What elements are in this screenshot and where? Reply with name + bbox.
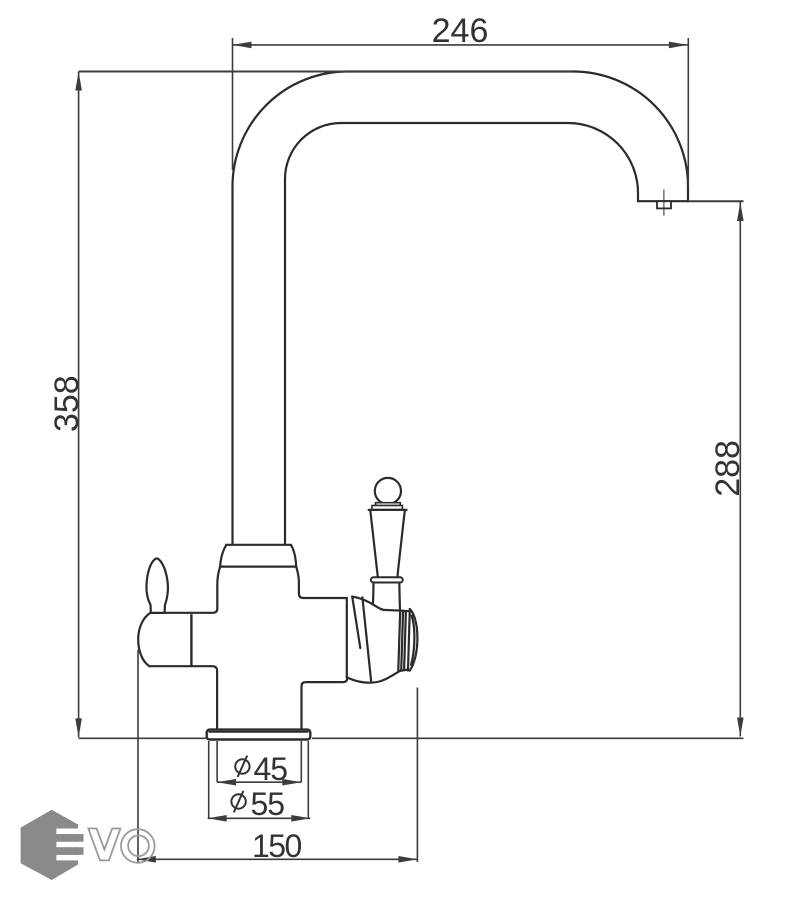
svg-text:150: 150	[252, 828, 302, 864]
svg-text:45: 45	[254, 751, 288, 787]
svg-text:288: 288	[709, 440, 747, 497]
svg-text:358: 358	[48, 375, 86, 432]
svg-text:246: 246	[432, 12, 489, 50]
svg-text:55: 55	[251, 786, 285, 822]
